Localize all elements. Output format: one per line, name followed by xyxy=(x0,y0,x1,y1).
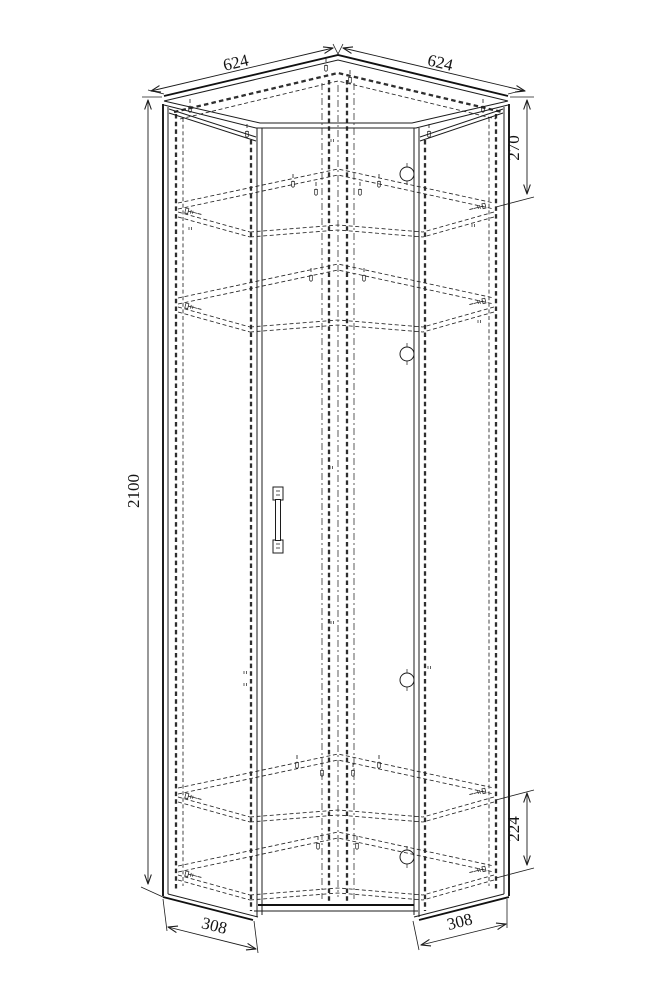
pin-icon xyxy=(472,224,475,227)
pin-icon xyxy=(244,671,247,674)
pin-icon xyxy=(331,621,334,624)
confirmat-icon xyxy=(467,203,486,212)
pin-icon xyxy=(331,139,334,142)
confirmat-icon xyxy=(185,793,204,802)
pin-icon xyxy=(330,466,333,469)
screw-icon xyxy=(324,58,328,71)
confirmat-icon xyxy=(467,298,486,307)
dim-label-308-left: 308 xyxy=(200,913,229,938)
screw-icon xyxy=(295,755,299,768)
pin-icon xyxy=(189,227,192,230)
dimension-2100: 2100 xyxy=(124,97,163,897)
hinge-hole xyxy=(400,669,414,691)
confirmat-icon xyxy=(185,208,204,217)
screw-icon xyxy=(377,755,381,768)
pin-icon xyxy=(244,683,247,686)
hinge-hole xyxy=(400,343,414,365)
confirmat-icon xyxy=(185,303,204,312)
dim-label-624-right: 624 xyxy=(426,50,456,74)
dim-label-624-left: 624 xyxy=(221,50,251,74)
confirmat-icon xyxy=(185,871,204,880)
hole-row-lines xyxy=(176,114,496,911)
corner-wardrobe-assembly-drawing: 624 624 2100 270 224 308 xyxy=(0,0,667,1000)
hinge-holes xyxy=(400,163,414,868)
screw-icon xyxy=(314,182,318,195)
pin-icon xyxy=(478,320,481,323)
door-handle xyxy=(273,487,283,553)
screw-icon xyxy=(355,836,359,849)
dimension-624-right: 624 xyxy=(338,44,525,94)
drawing-page: 624 624 2100 270 224 308 xyxy=(0,0,667,1000)
screw-icon xyxy=(377,174,381,187)
screw-icon xyxy=(358,182,362,195)
hinge-hole xyxy=(400,163,414,185)
pin-icon xyxy=(428,666,431,669)
confirmat-icon xyxy=(467,788,486,797)
dimension-308-right: 308 xyxy=(413,899,507,950)
confirmat-icon xyxy=(467,866,486,875)
hinge-hole xyxy=(400,846,414,868)
screw-icon xyxy=(481,99,485,112)
dim-label-2100: 2100 xyxy=(124,474,143,508)
dimension-224: 224 xyxy=(496,790,534,878)
dimension-624-left: 624 xyxy=(148,44,338,94)
dim-label-224: 224 xyxy=(504,816,523,842)
fastener-icons xyxy=(185,58,486,880)
carcass-solid-lines xyxy=(163,55,509,920)
screw-icon xyxy=(188,99,192,112)
dim-label-270: 270 xyxy=(504,135,523,161)
dimension-308-left: 308 xyxy=(163,899,258,953)
screw-icon xyxy=(427,124,431,137)
screw-icon xyxy=(291,174,295,187)
center-post-lines xyxy=(322,80,354,901)
